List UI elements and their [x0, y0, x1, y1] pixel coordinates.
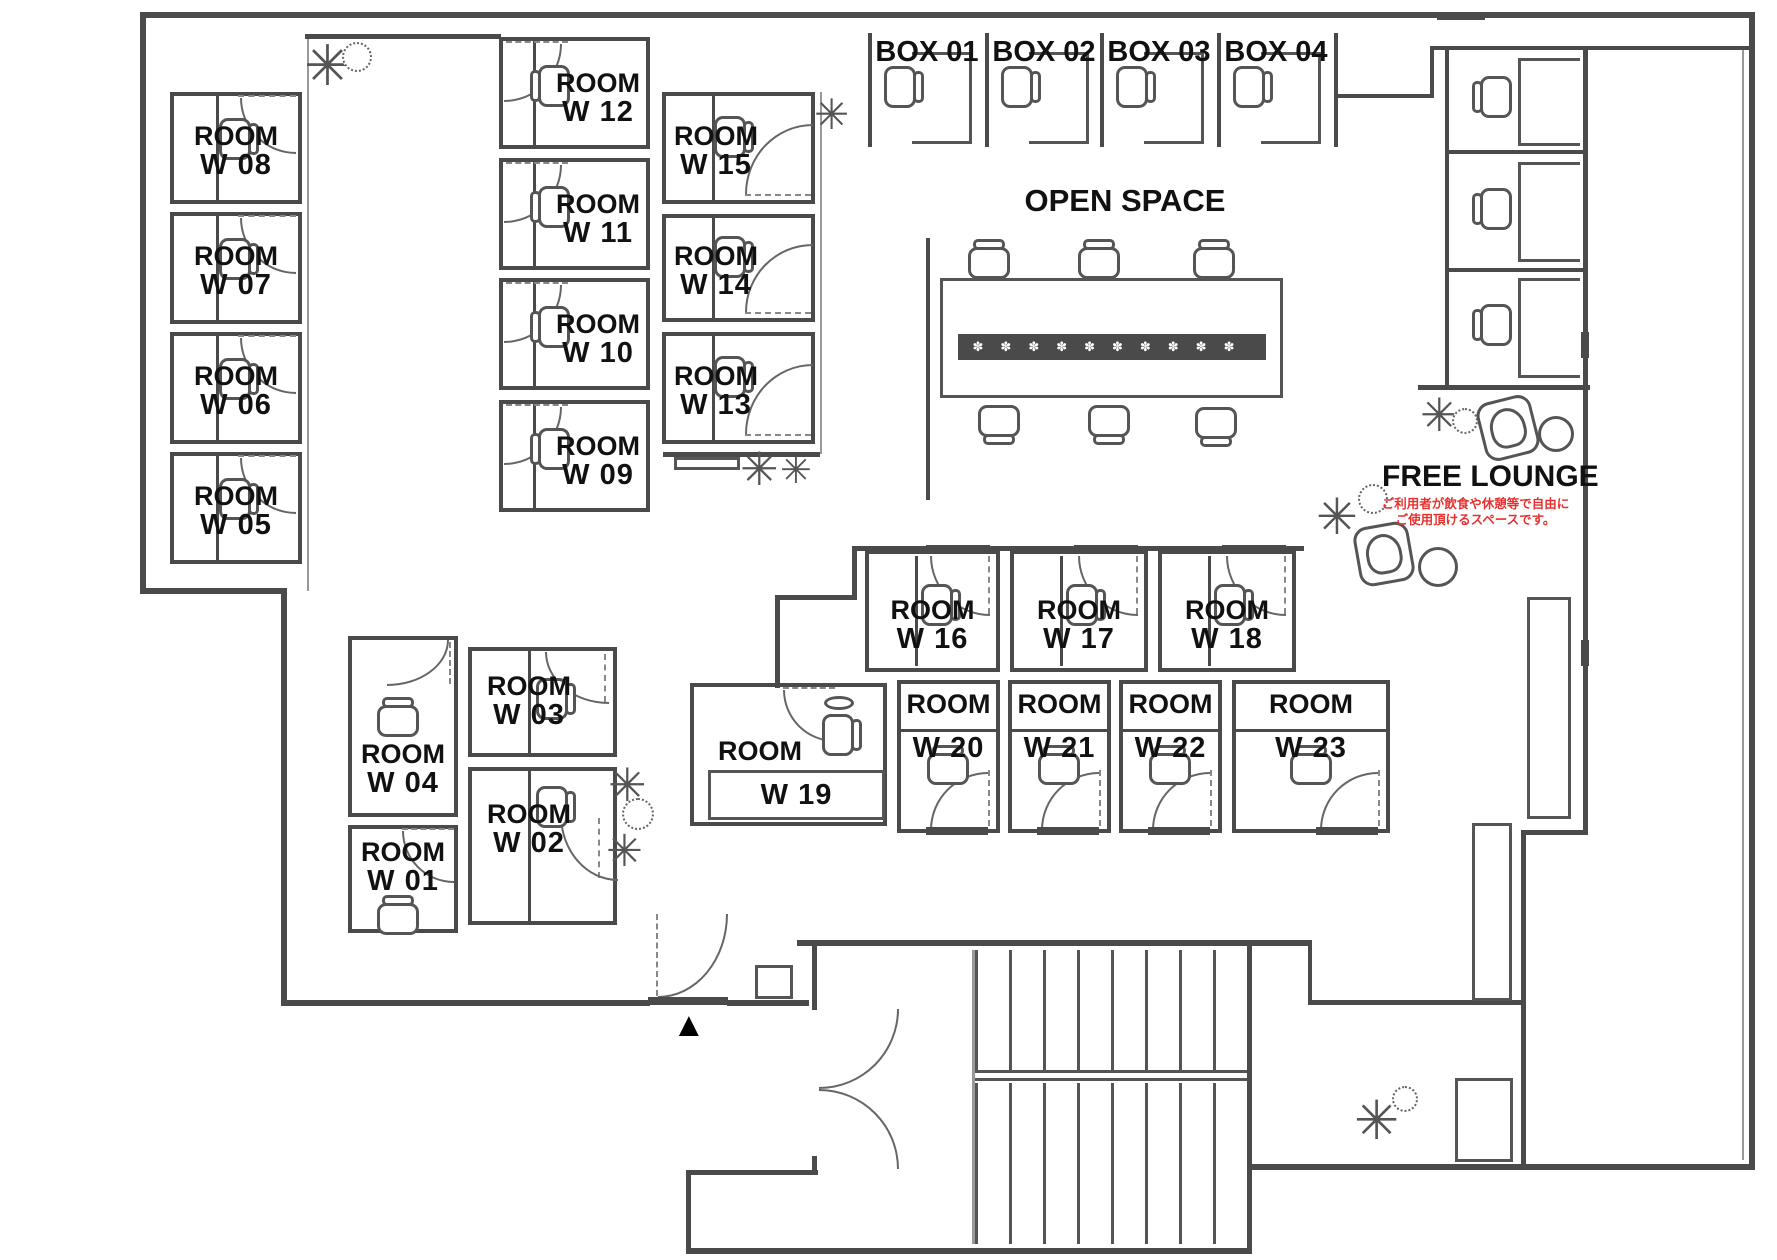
cabinet [1527, 597, 1571, 819]
door-opening-dashed [506, 282, 568, 284]
room-w19-label-line2: W 19 [710, 780, 883, 810]
chair-icon [1480, 188, 1512, 230]
room-w13-label: ROOMW 13 [664, 362, 768, 421]
door-arc [819, 1009, 899, 1089]
wall [1334, 33, 1338, 147]
plant-icon [622, 798, 654, 830]
wall [1247, 1164, 1755, 1170]
door-threshold [926, 545, 990, 553]
stairs-upper-flight [975, 950, 1247, 1074]
chair-icon [978, 405, 1020, 437]
wall [1749, 12, 1755, 1170]
wall [1308, 940, 1312, 1004]
room-w08-label: ROOMW 08 [172, 122, 300, 181]
wall [140, 12, 1755, 18]
wall [281, 1000, 650, 1006]
box-04-label: BOX 04 [1223, 36, 1329, 69]
wall [1430, 46, 1752, 50]
side-table [1418, 547, 1458, 587]
door-opening-dashed [402, 828, 454, 830]
pillar-box [755, 965, 793, 999]
wall [307, 39, 309, 591]
door-leaf-dashed [1210, 770, 1212, 826]
free-lounge-label: FREE LOUNGE [1382, 460, 1582, 494]
desk [1518, 278, 1580, 378]
chair-icon [1480, 304, 1512, 346]
cabinet [1472, 823, 1512, 1001]
chair-icon [884, 66, 916, 108]
door-threshold [926, 827, 988, 835]
wall [1445, 150, 1585, 154]
room-w22-label-line2: W 22 [1121, 733, 1220, 763]
room-w05-label: ROOMW 05 [172, 482, 300, 541]
lounge-chair [1351, 520, 1417, 589]
cabinet [1455, 1078, 1513, 1162]
door-threshold [1437, 13, 1485, 20]
plant-icon: ✳ [740, 446, 779, 492]
wall [281, 588, 287, 1006]
wall [727, 1000, 809, 1006]
room-w14-label: ROOMW 14 [664, 242, 768, 301]
chair-icon [1088, 405, 1130, 437]
table-centerpiece: ✽✽✽✽✽✽✽✽✽✽ [958, 334, 1266, 360]
room-w06-label: ROOMW 06 [172, 362, 300, 421]
room-w21-label-line1: ROOM [1010, 690, 1109, 718]
door-opening-dashed [506, 41, 568, 43]
stairs-landing-rail [975, 1070, 1247, 1081]
chair-icon [1233, 66, 1265, 108]
wall [797, 940, 1310, 946]
chair-icon [377, 705, 419, 737]
door-threshold [1037, 827, 1099, 835]
door-opening-dashed [238, 95, 296, 97]
wall [1217, 33, 1221, 147]
door-leaf-dashed [1099, 770, 1101, 826]
wall [1583, 46, 1588, 835]
door-opening-dashed [238, 215, 296, 217]
room-w15-label: ROOMW 15 [664, 122, 768, 181]
wall [775, 595, 780, 688]
plant-icon: ✳ [1316, 492, 1358, 542]
window-mark [1581, 640, 1589, 666]
wall [140, 12, 146, 594]
door-opening-dashed [745, 194, 811, 196]
chair-icon [968, 247, 1010, 279]
room-w18-label: ROOMW 18 [1162, 596, 1292, 655]
door-leaf-dashed [988, 770, 990, 826]
chair-icon [1193, 247, 1235, 279]
room-w12-label: ROOMW 12 [548, 69, 648, 128]
door-threshold [1074, 545, 1138, 553]
door-threshold [1148, 827, 1210, 835]
lounge-chair [1474, 392, 1543, 464]
wall [1521, 830, 1588, 835]
chair-icon [1116, 66, 1148, 108]
room-w07-label: ROOMW 07 [172, 242, 300, 301]
chair-icon [1195, 407, 1237, 439]
entrance-marker: ▲ [672, 1008, 706, 1042]
plant-icon [1392, 1086, 1418, 1112]
side-table [824, 696, 854, 710]
wall [140, 588, 287, 594]
entrance-door-arc [658, 914, 728, 998]
room-w20-label-line1: ROOM [899, 690, 998, 718]
box-03-label: BOX 03 [1106, 36, 1212, 69]
stairs-lower-flight [975, 1083, 1247, 1244]
room-w04-label: ROOMW 04 [350, 740, 456, 799]
chair-icon [1078, 247, 1120, 279]
wall [812, 946, 817, 1010]
door-arc [819, 1089, 899, 1169]
wall [868, 33, 872, 147]
wall [686, 1170, 818, 1175]
side-table [1538, 416, 1574, 452]
wall [1742, 48, 1744, 1160]
wall [820, 92, 822, 454]
door-threshold [1222, 545, 1286, 553]
shelf [674, 457, 740, 470]
plant-icon: ✳ [780, 452, 812, 490]
room-w16-label: ROOMW 16 [869, 596, 996, 655]
wall [1445, 268, 1585, 272]
door-opening-dashed [506, 404, 568, 406]
room-w11-label: ROOMW 11 [548, 190, 648, 249]
room-w02-label: ROOMW 02 [470, 800, 588, 859]
room-w23-label-line2: W 23 [1234, 733, 1388, 763]
door-leaf-dashed [449, 642, 451, 684]
room-w09-label: ROOMW 09 [548, 432, 648, 491]
desk [1518, 162, 1580, 262]
desk [1518, 58, 1580, 146]
door-threshold [1316, 827, 1378, 835]
wall [1336, 94, 1434, 98]
wall [1445, 48, 1449, 388]
door-opening-dashed [745, 312, 811, 314]
chair-icon [822, 714, 854, 756]
wall [1430, 46, 1434, 98]
room-w19-label-line1: ROOM [700, 737, 820, 765]
plant-icon: ✳ [814, 94, 849, 136]
wall [926, 238, 930, 500]
wall [686, 1170, 691, 1254]
open-space-label: OPEN SPACE [1020, 183, 1230, 219]
room-w01-label: ROOMW 01 [350, 838, 456, 897]
room-w22-label-line1: ROOM [1121, 690, 1220, 718]
door-opening-dashed [506, 162, 568, 164]
box-02-label: BOX 02 [991, 36, 1097, 69]
floor-plan: ▲ ROOMW 08 ROOMW 07 ROOMW 06 ROOMW 05 RO… [0, 0, 1777, 1260]
room-w21-label-line2: W 21 [1010, 733, 1109, 763]
chair-icon [1480, 76, 1512, 118]
door-opening-dashed [745, 434, 811, 436]
window-mark [1581, 332, 1589, 358]
wall [985, 33, 989, 147]
room-w20-label-line2: W 20 [899, 733, 998, 763]
chair-icon [1001, 66, 1033, 108]
plant-icon [1452, 408, 1478, 434]
room-w03-label: ROOMW 03 [470, 672, 588, 731]
wall [775, 595, 857, 600]
wall [1100, 33, 1104, 147]
box-01-label: BOX 01 [874, 36, 980, 69]
door-opening-dashed [783, 687, 835, 689]
room-w17-label: ROOMW 17 [1014, 596, 1144, 655]
plant-icon [342, 42, 372, 72]
plant-icon: ✳ [606, 830, 643, 874]
room-w23-label-line1: ROOM [1234, 690, 1388, 718]
wall [852, 546, 857, 600]
room-w10-label: ROOMW 10 [548, 310, 648, 369]
free-lounge-note-line2: ご使用頂けるスペースです。 [1368, 509, 1583, 528]
wall [1247, 946, 1252, 1254]
plant-icon: ✳ [304, 38, 351, 94]
door-leaf-dashed [1378, 770, 1380, 826]
chair-icon [377, 903, 419, 935]
door-opening-dashed [238, 455, 296, 457]
wall [686, 1248, 1252, 1254]
entrance-threshold [648, 997, 728, 1005]
door-opening-dashed [238, 335, 296, 337]
